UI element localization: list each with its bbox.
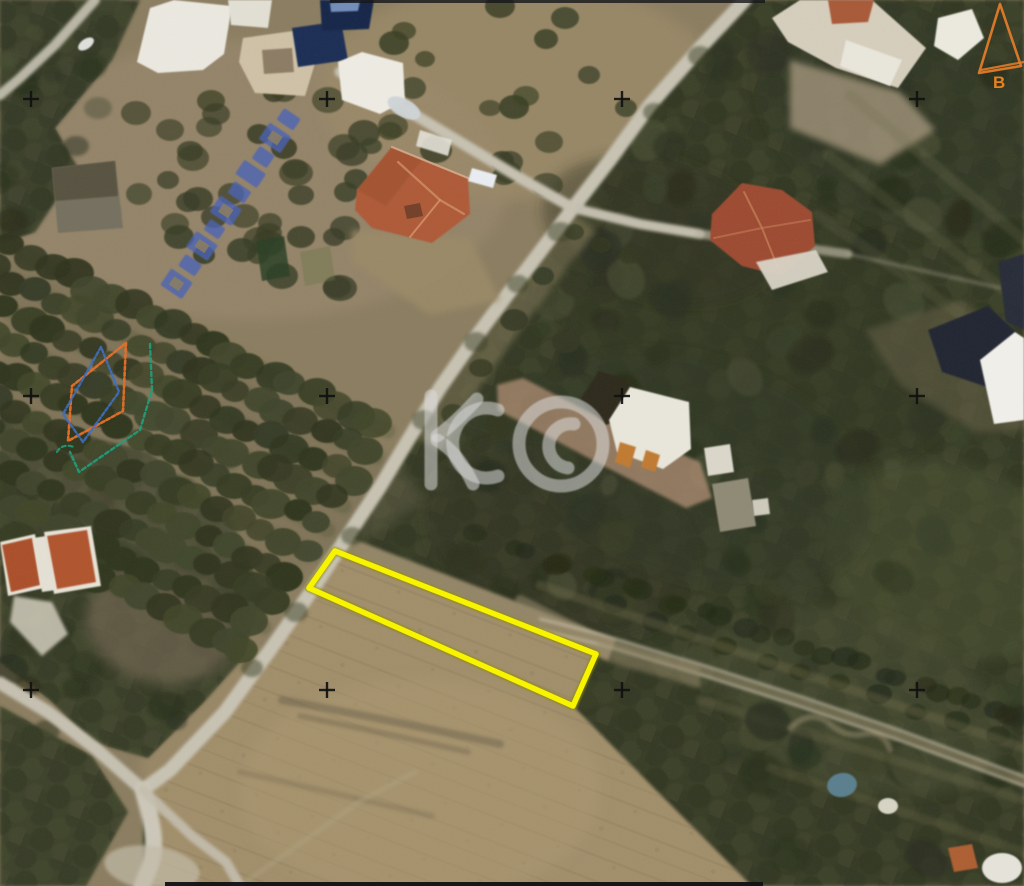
svg-text:B: B [993, 73, 1005, 92]
